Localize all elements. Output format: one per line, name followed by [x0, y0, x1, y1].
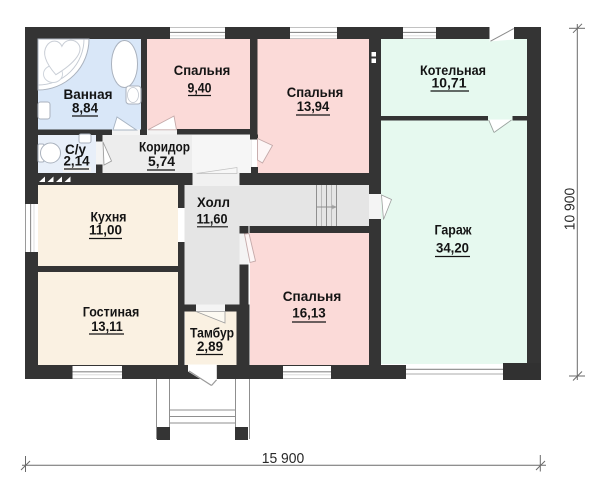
svg-text:16,13: 16,13: [292, 305, 326, 321]
svg-text:8,84: 8,84: [72, 100, 98, 116]
svg-text:Спальня: Спальня: [283, 288, 342, 304]
svg-text:Спальня: Спальня: [174, 62, 231, 78]
svg-text:2,89: 2,89: [197, 338, 223, 354]
svg-text:Гараж: Гараж: [435, 222, 473, 238]
svg-text:13,94: 13,94: [297, 98, 330, 114]
svg-text:5,74: 5,74: [148, 153, 175, 169]
svg-text:2,14: 2,14: [64, 153, 90, 169]
svg-text:10 900: 10 900: [562, 188, 579, 231]
svg-text:11,00: 11,00: [89, 222, 122, 238]
svg-text:15 900: 15 900: [262, 450, 305, 467]
svg-text:9,40: 9,40: [188, 80, 212, 96]
svg-text:11,60: 11,60: [197, 211, 228, 227]
svg-text:13,11: 13,11: [91, 318, 123, 334]
svg-text:10,71: 10,71: [432, 75, 467, 91]
svg-text:Холл: Холл: [197, 194, 230, 210]
svg-text:34,20: 34,20: [436, 240, 469, 256]
